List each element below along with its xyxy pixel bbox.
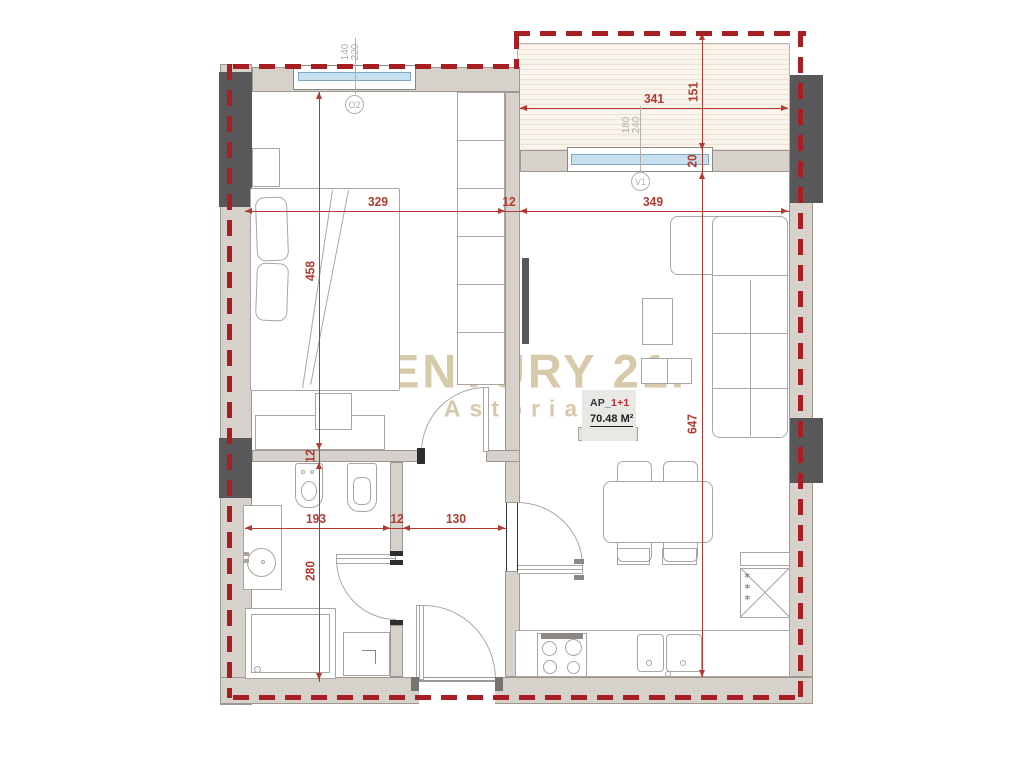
entrance-door-leaf	[416, 605, 424, 680]
property-boundary-dash	[233, 64, 514, 69]
bath-door-jamb	[390, 560, 403, 565]
dim-label-bath-width: 193	[306, 511, 326, 526]
property-boundary-dash	[514, 33, 519, 69]
side-table	[642, 298, 673, 345]
window-v1-size-h: 240	[632, 117, 642, 134]
dim-label-bedroom-width: 329	[368, 194, 388, 209]
wardrobe-shelf-line	[457, 236, 505, 237]
structural-column	[219, 438, 252, 498]
window-o2-tag-text: O2	[348, 100, 360, 110]
wall-mounted-tv	[522, 258, 529, 344]
dimension-arrow	[498, 525, 505, 531]
entrance-door-jamb	[495, 677, 503, 691]
dimension-arrow	[699, 172, 705, 179]
property-boundary-dash	[798, 31, 803, 700]
apartment-title-block: AP_1+1 70.48 M²	[582, 390, 636, 441]
window-v1-tag: V1	[631, 172, 650, 191]
dim-label-balcony-depth: 151	[686, 82, 701, 102]
dimension-arrow	[699, 143, 705, 150]
dimension-line-vertical-left	[319, 92, 320, 682]
wardrobe-shelf-line	[457, 140, 505, 141]
bidet-tap-dot	[310, 470, 314, 474]
bidet-tap-dot	[301, 470, 305, 474]
sofa-cushion-line	[712, 275, 788, 276]
dimension-arrow	[316, 462, 322, 469]
dim-label-hall-width: 130	[446, 511, 466, 526]
dimension-arrow	[403, 525, 410, 531]
entrance-door-swing	[424, 605, 496, 680]
washbasin-faucet	[243, 552, 249, 556]
wardrobe-shelf-line	[457, 332, 505, 333]
bedroom-door-jamb	[417, 448, 425, 464]
property-boundary-dash	[233, 695, 805, 700]
apartment-area: 70.48 M²	[590, 413, 633, 427]
dim-label-balcony-width: 341	[644, 91, 664, 106]
dimension-arrow	[520, 105, 527, 111]
dimension-arrow	[383, 525, 390, 531]
stove-burner	[543, 660, 557, 674]
apartment-id-prefix: AP_	[590, 397, 611, 409]
wall-bath-hall-lower	[390, 625, 403, 677]
dimension-line-horizontal-upper	[245, 211, 790, 212]
wall-cabinet	[662, 548, 697, 565]
wall-bedroom-bath	[252, 450, 421, 462]
wall-bedroom-bath-stub	[486, 450, 520, 462]
stove-burner	[567, 661, 580, 674]
dimension-line-balcony	[520, 108, 788, 109]
bidet-bowl	[301, 481, 317, 501]
nightstand	[252, 148, 280, 187]
wardrobe-shelf-line	[457, 284, 505, 285]
dimension-arrow	[245, 525, 252, 531]
dim-label-wall-mid: 12	[303, 449, 318, 462]
living-door-handle	[574, 559, 584, 564]
floor-plan-canvas: CENTURY 21. Astoria	[0, 0, 1024, 768]
window-o2-size-h: 220	[351, 44, 361, 61]
living-door-swing	[517, 502, 583, 566]
bath-door-swing	[336, 559, 396, 620]
dim-label-bedroom-depth: 458	[303, 261, 318, 281]
shower-drain	[254, 666, 261, 673]
sink-basin	[637, 634, 664, 672]
dining-table	[603, 481, 713, 543]
dimension-arrow	[520, 208, 527, 214]
stove-control-strip	[541, 633, 583, 639]
sink-basin	[666, 634, 702, 672]
dim-label-wall-bath: 12	[390, 511, 403, 526]
bath-door-jamb	[390, 551, 403, 556]
stove-burner	[565, 639, 582, 656]
window-o2-size-label: 140 220	[341, 44, 361, 61]
washbasin-drain	[261, 560, 265, 564]
apartment-id: AP_1+1	[590, 397, 636, 409]
media-cabinet-divider	[667, 358, 668, 384]
bath-door-jamb	[390, 620, 403, 625]
cabinet-over-fridge	[740, 552, 790, 566]
washbasin-faucet	[243, 559, 249, 563]
wardrobe	[457, 92, 505, 385]
sofa-back-line	[750, 280, 751, 436]
living-door-leaf-line	[517, 569, 583, 570]
entrance-threshold	[419, 680, 495, 682]
structural-column	[790, 418, 823, 483]
living-door-frame	[506, 503, 518, 571]
wall-bedroom-living-upper	[505, 92, 520, 503]
dim-label-wall-top: 12	[502, 194, 515, 209]
entrance-door-jamb	[411, 677, 419, 691]
living-door-handle	[574, 575, 584, 580]
wall-cabinet	[617, 548, 650, 565]
sink-drain	[680, 660, 686, 666]
property-boundary-dash	[514, 31, 806, 36]
dim-label-bath-depth: 280	[303, 561, 318, 581]
dimension-arrow	[781, 105, 788, 111]
dimension-line-vertical-right	[702, 33, 703, 677]
stove-burner	[542, 641, 557, 656]
apartment-id-unit: 1+1	[611, 397, 629, 409]
dim-label-living-depth: 647	[685, 414, 700, 434]
window-o2-tag: O2	[345, 95, 364, 114]
dimension-arrow	[245, 208, 252, 214]
dimension-arrow	[316, 673, 322, 680]
sink-drain	[646, 660, 652, 666]
washing-machine-door-icon	[362, 650, 376, 664]
entrance-door-leaf-line	[419, 605, 420, 680]
dimension-arrow	[316, 92, 322, 99]
dimension-arrow	[699, 670, 705, 677]
structural-column	[790, 75, 823, 203]
structural-column	[219, 72, 252, 207]
dimension-line-horizontal-lower	[245, 528, 507, 529]
property-boundary-dash	[227, 64, 232, 698]
toilet-bowl	[353, 477, 371, 505]
window-v1-size-label: 180 240	[622, 117, 642, 134]
dim-label-parapet: 20	[685, 154, 700, 167]
dim-label-living-width: 349	[643, 194, 663, 209]
pillow	[255, 196, 289, 261]
dresser-tv	[315, 393, 352, 430]
window-v1-tag-text: V1	[635, 177, 646, 187]
dimension-arrow	[781, 208, 788, 214]
pillow	[255, 262, 289, 321]
wall-bath-hall-upper	[390, 462, 403, 552]
sink-faucet	[665, 671, 671, 677]
wardrobe-shelf-line	[457, 188, 505, 189]
freezer-snowflake-icons: * * *	[744, 572, 751, 605]
